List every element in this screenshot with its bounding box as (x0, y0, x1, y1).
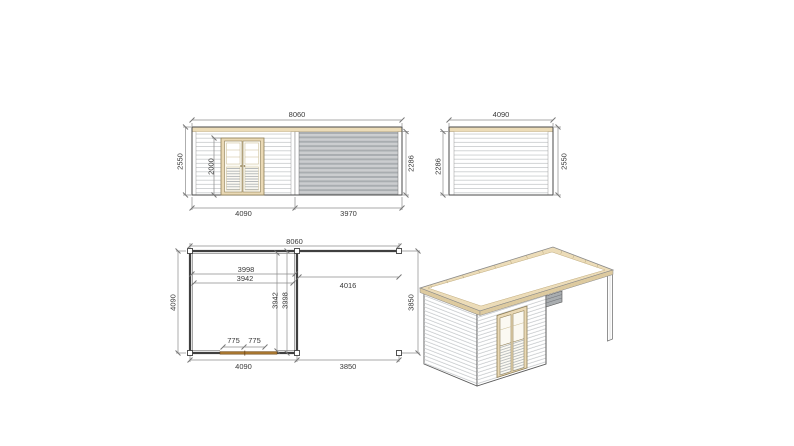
canopy-post-right (398, 132, 402, 196)
front-double-door (221, 138, 264, 195)
side-elevation-drawing (440, 120, 561, 195)
plan-door-symbol (220, 352, 277, 355)
floor-plan-drawing (176, 243, 420, 362)
canopy-back-wall (299, 132, 398, 196)
roof-fascia (192, 127, 402, 132)
front-elevation-drawing (183, 120, 409, 210)
canopy-post-left (295, 132, 299, 196)
front-double-door-3d (497, 306, 527, 378)
roof-fascia (449, 127, 553, 132)
door-handle-icon (240, 165, 242, 167)
drawing-canvas (0, 0, 794, 446)
door-handle-icon (244, 165, 246, 167)
isometric-view (420, 247, 613, 386)
technical-drawing: 8060 2550 2000 2286 4090 3970 4090 2286 … (0, 0, 794, 446)
